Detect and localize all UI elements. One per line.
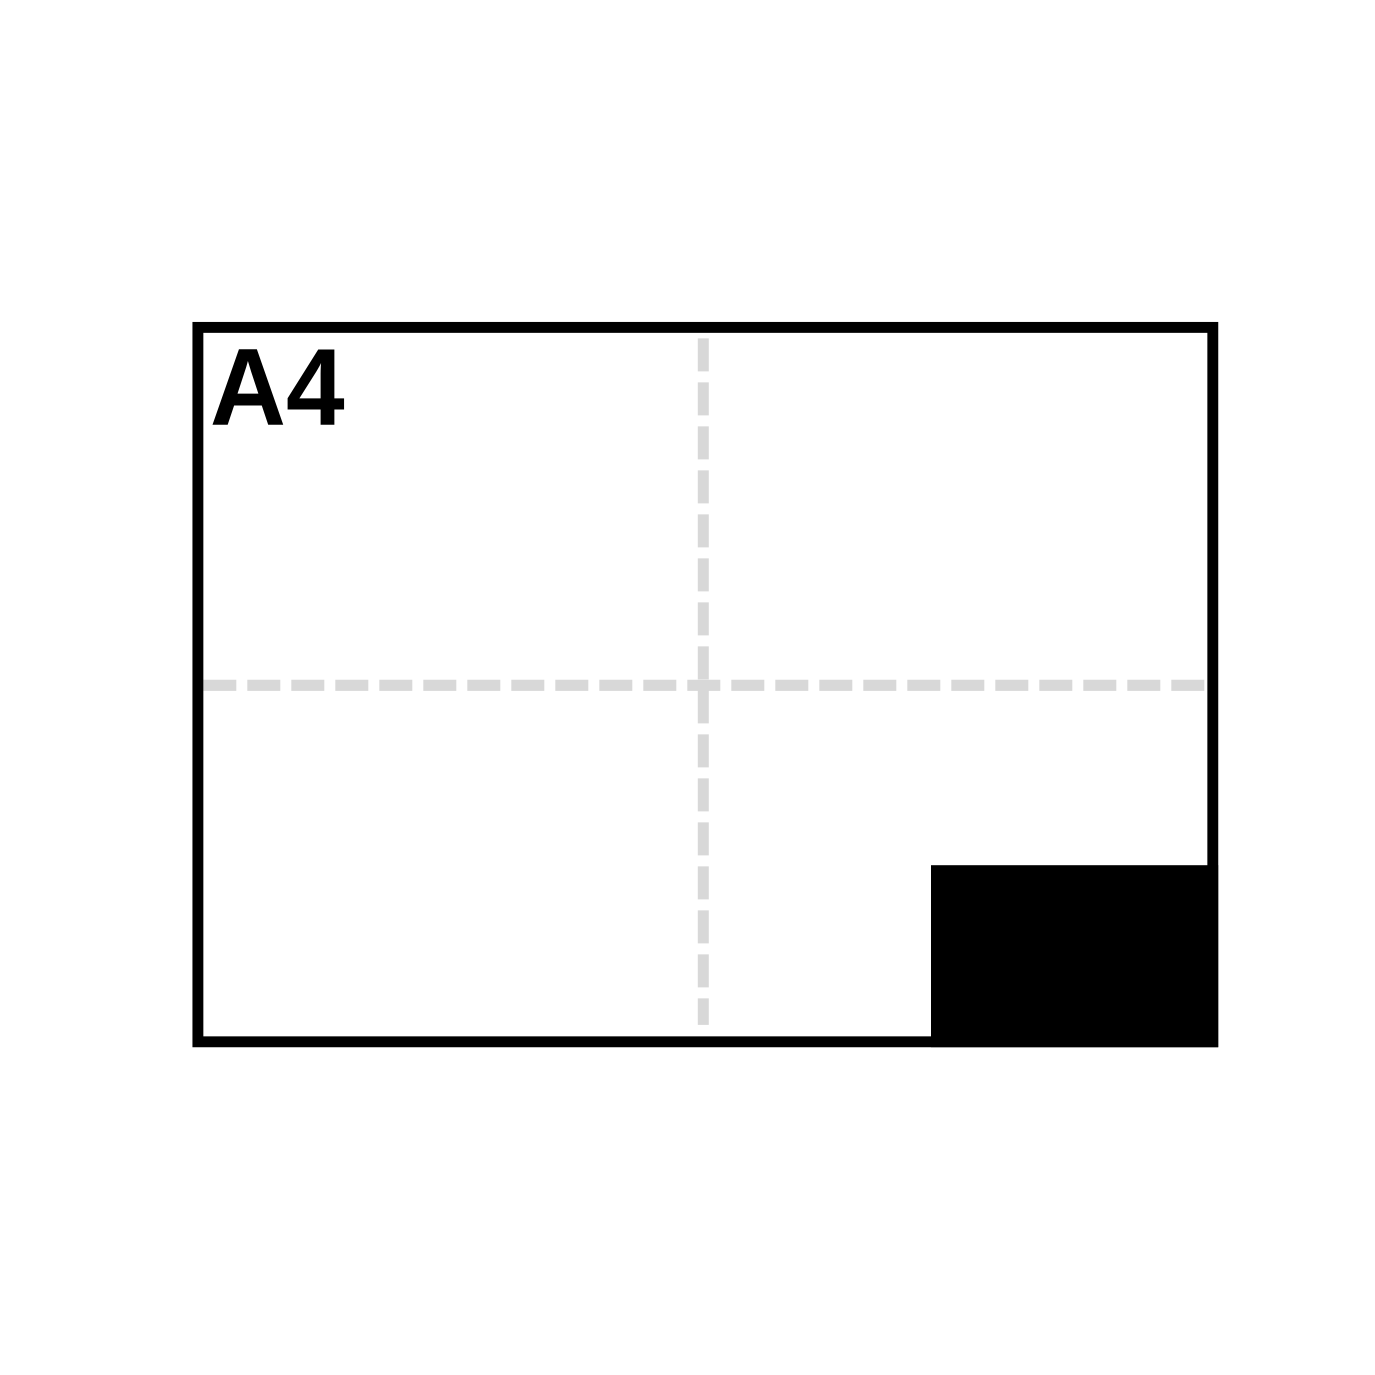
svg-text:A4: A4: [210, 326, 345, 448]
